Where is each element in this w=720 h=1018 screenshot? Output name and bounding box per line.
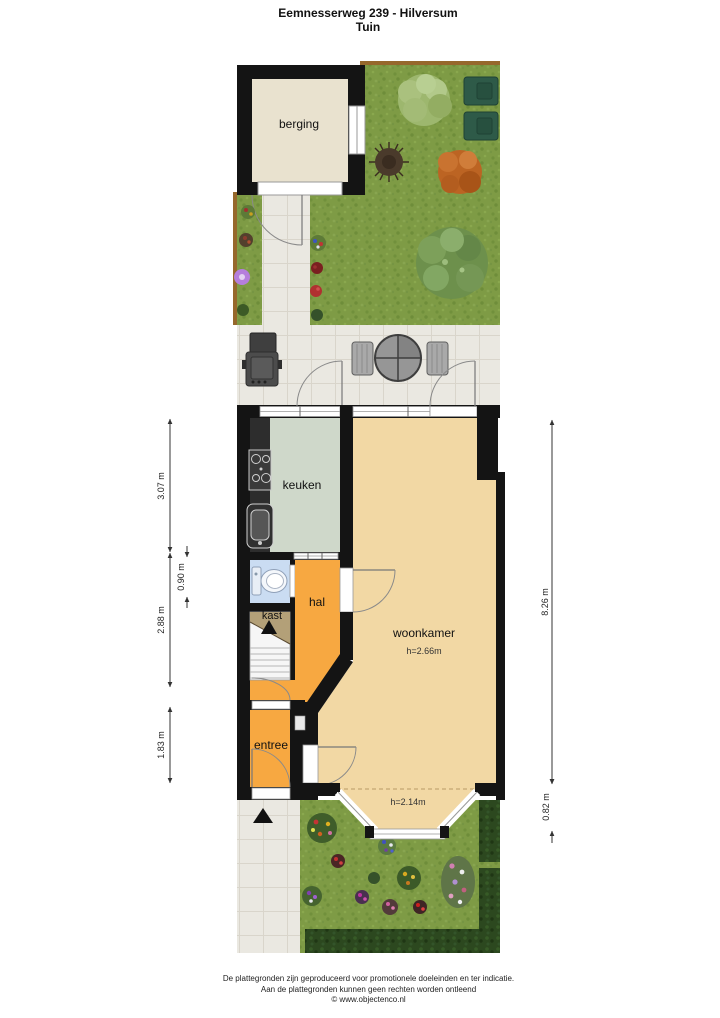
- floor-plan-svg: berging: [0, 0, 720, 1018]
- woonkamer-height-label: h=2.66m: [406, 646, 441, 656]
- stairs: kast: [250, 610, 290, 680]
- hedge-right-lower: [479, 868, 500, 953]
- hedge-bottom: [305, 929, 479, 953]
- sink-icon: [247, 504, 273, 548]
- title-address: Eemnesserweg 239 - Hilversum: [18, 6, 718, 20]
- wall-right-upper: [477, 405, 498, 480]
- hedge-right-upper: [479, 800, 500, 862]
- berging-door-opening: [258, 182, 342, 195]
- back-garden: berging: [233, 61, 500, 405]
- dim-left-0-90: 0.90 m: [176, 546, 187, 608]
- bush-large-green: [416, 227, 488, 299]
- svg-text:0.90 m: 0.90 m: [176, 563, 186, 591]
- toilet-room: [250, 560, 290, 603]
- front-door: [252, 788, 290, 799]
- page-title: Eemnesserweg 239 - Hilversum Tuin: [18, 6, 718, 34]
- title-floor: Tuin: [18, 20, 718, 34]
- svg-text:3.07 m: 3.07 m: [156, 472, 166, 500]
- house: woonkamer h=2.66m: [237, 361, 505, 839]
- dim-right-0-82: 0.82 m: [541, 772, 552, 843]
- dim-left-1-83: 1.83 m: [156, 707, 170, 783]
- floorplan-page: Eemnesserweg 239 - Hilversum Tuin: [0, 0, 720, 1018]
- woonkamer-terrace-door: [430, 407, 477, 417]
- hal-entree-door: [252, 701, 290, 709]
- room-label-berging: berging: [279, 117, 319, 131]
- dim-left-2-88: 2.88 m: [156, 553, 170, 687]
- svg-text:1.83 m: 1.83 m: [156, 731, 166, 759]
- wall-niche: [295, 716, 305, 730]
- entree-woonkamer-door: [303, 745, 318, 783]
- svg-text:8.26 m: 8.26 m: [540, 588, 550, 616]
- wall-keuken-woonkamer: [340, 418, 353, 568]
- room-label-kast: kast: [262, 610, 282, 622]
- room-label-hal: hal: [309, 595, 325, 609]
- bush-orange: [438, 150, 482, 194]
- wall-left: [237, 405, 250, 800]
- room-label-woonkamer: woonkamer: [392, 626, 455, 640]
- bush-dark-spiky: [369, 142, 409, 182]
- stove-icon: [249, 450, 271, 490]
- wall-right-lower: [496, 472, 505, 800]
- disclaimer-line-1: De plattegronden zijn geproduceerd voor …: [0, 974, 720, 985]
- toilet-door: [290, 565, 295, 597]
- disclaimer-line-2: Aan de plattegronden kunnen geen rechten…: [0, 985, 720, 996]
- svg-text:0.82 m: 0.82 m: [541, 793, 551, 821]
- dim-left-3-07: 3.07 m: [156, 419, 170, 552]
- svg-text:2.88 m: 2.88 m: [156, 606, 166, 634]
- dim-right-8-26: 8.26 m: [540, 420, 552, 784]
- keuken-room: keuken: [247, 418, 340, 552]
- toilet-icon: [252, 567, 287, 595]
- disclaimer-copyright: © www.objectenco.nl: [0, 995, 720, 1006]
- room-label-keuken: keuken: [283, 478, 322, 492]
- erker-height-label: h=2.14m: [390, 797, 425, 807]
- disclaimer: De plattegronden zijn geproduceerd voor …: [0, 974, 720, 1006]
- fence-left: [233, 192, 237, 325]
- garden-path: [262, 195, 310, 325]
- hal-woonkamer-door: [340, 568, 353, 612]
